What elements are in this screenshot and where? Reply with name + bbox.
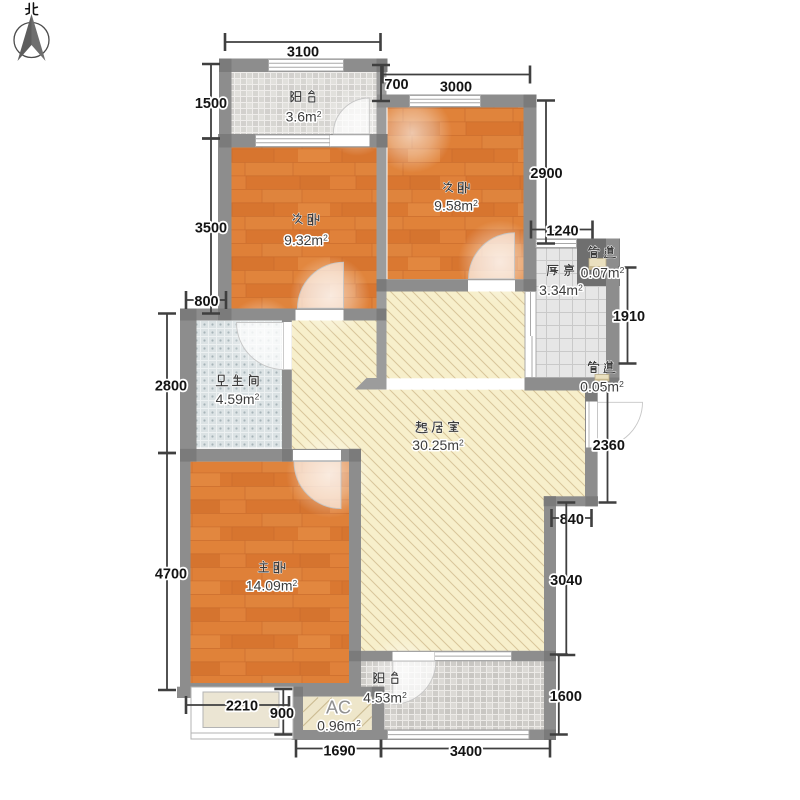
svg-text:0.96m2: 0.96m2 xyxy=(317,718,361,734)
svg-text:700: 700 xyxy=(384,77,408,93)
svg-text:9.32m2: 9.32m2 xyxy=(284,232,328,248)
svg-text:3500: 3500 xyxy=(195,221,227,237)
svg-text:2210: 2210 xyxy=(226,699,258,715)
svg-text:3040: 3040 xyxy=(550,573,582,589)
svg-text:840: 840 xyxy=(560,512,584,528)
svg-text:0.05m2: 0.05m2 xyxy=(580,379,624,395)
svg-text:AC: AC xyxy=(326,698,351,718)
svg-text:2900: 2900 xyxy=(530,166,562,182)
svg-text:1500: 1500 xyxy=(195,96,227,112)
svg-text:0.07m2: 0.07m2 xyxy=(581,265,625,281)
svg-text:3400: 3400 xyxy=(450,744,482,760)
svg-text:800: 800 xyxy=(194,294,218,310)
svg-text:3100: 3100 xyxy=(287,45,319,61)
svg-text:4700: 4700 xyxy=(155,567,187,583)
svg-text:900: 900 xyxy=(270,706,294,722)
svg-text:4.53m2: 4.53m2 xyxy=(363,690,407,706)
svg-text:14.09m2: 14.09m2 xyxy=(246,578,298,594)
svg-text:1240: 1240 xyxy=(546,224,578,240)
svg-text:9.58m2: 9.58m2 xyxy=(434,198,478,214)
svg-text:1910: 1910 xyxy=(613,309,645,325)
svg-text:3.34m2: 3.34m2 xyxy=(539,282,583,298)
svg-text:4.59m2: 4.59m2 xyxy=(216,391,260,407)
svg-text:1600: 1600 xyxy=(550,689,582,705)
svg-text:30.25m2: 30.25m2 xyxy=(412,437,464,453)
svg-text:2800: 2800 xyxy=(155,379,187,395)
svg-text:3.6m2: 3.6m2 xyxy=(286,109,322,125)
svg-text:3000: 3000 xyxy=(440,80,472,96)
svg-text:2360: 2360 xyxy=(593,438,625,454)
svg-text:1690: 1690 xyxy=(323,744,355,760)
